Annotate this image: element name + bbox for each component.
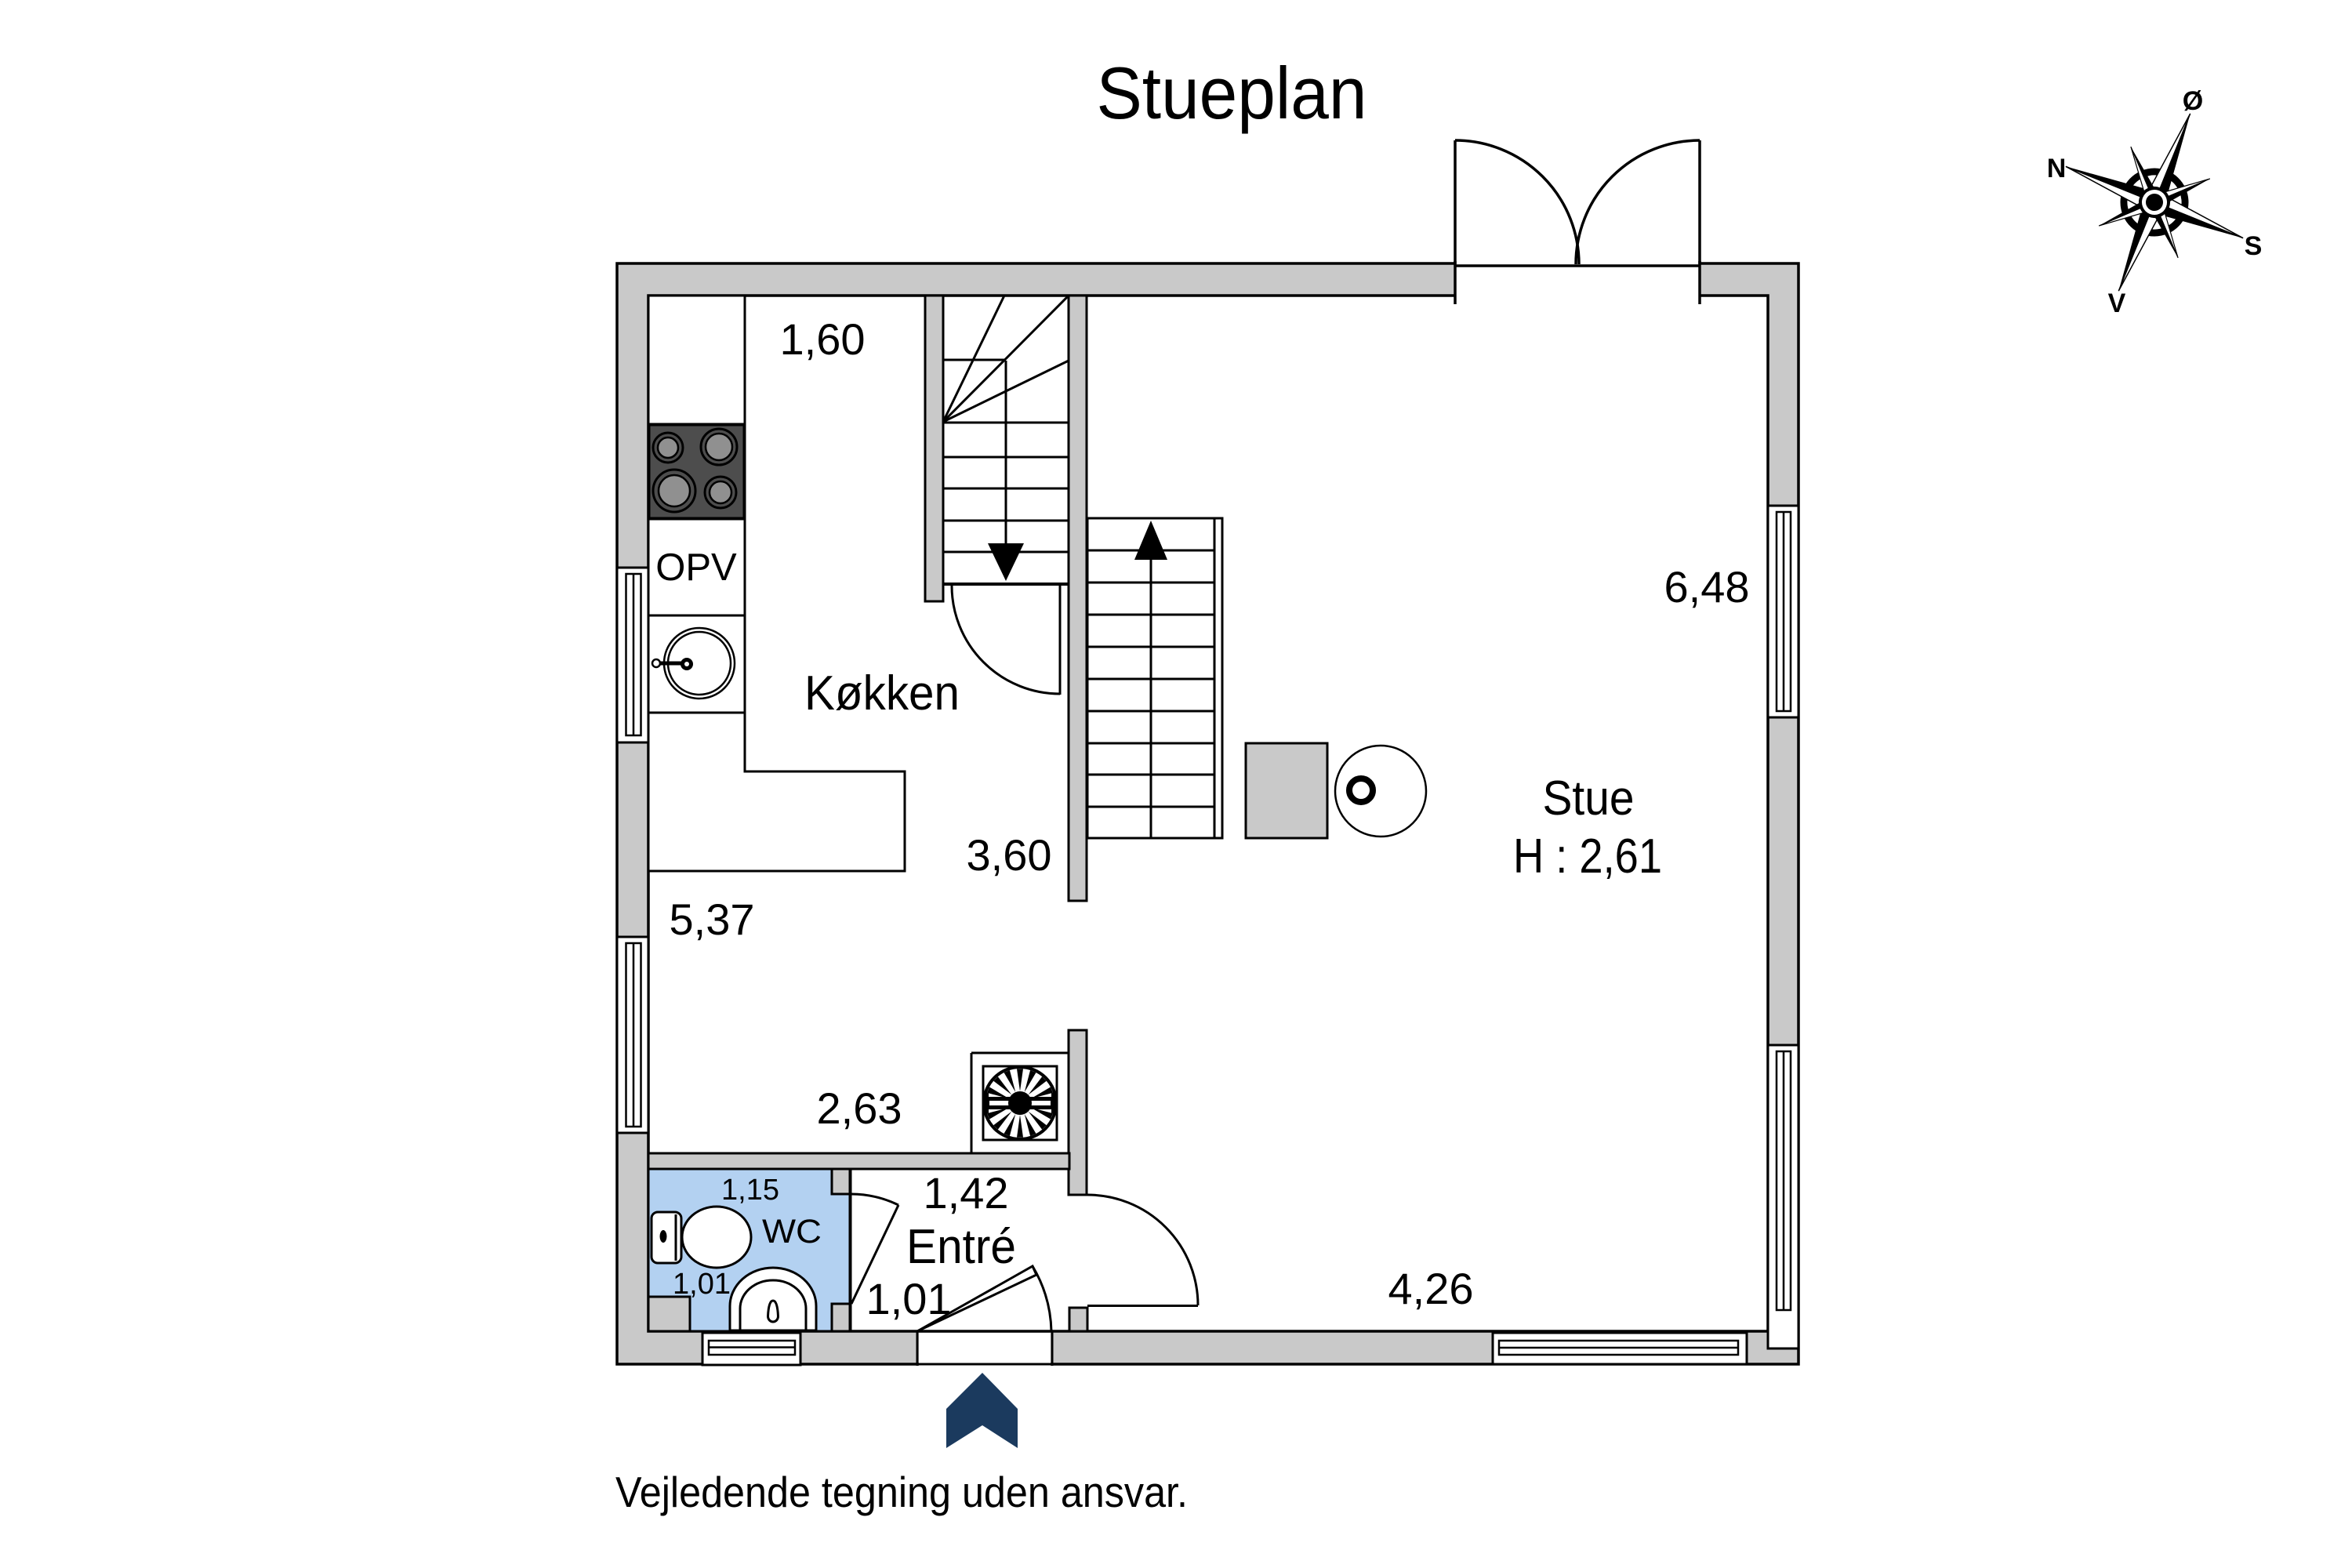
svg-text:1,01: 1,01 (866, 1274, 952, 1323)
svg-text:V: V (2108, 289, 2126, 318)
svg-text:Køkken: Køkken (804, 666, 960, 720)
svg-text:1,42: 1,42 (924, 1168, 1009, 1218)
svg-text:WC: WC (762, 1213, 822, 1250)
svg-text:S: S (2245, 231, 2263, 261)
svg-text:Stueplan: Stueplan (1097, 52, 1367, 134)
svg-text:Vejledende tegning uden ansvar: Vejledende tegning uden ansvar. (615, 1468, 1188, 1516)
svg-text:N: N (2047, 154, 2067, 183)
svg-text:1,15: 1,15 (721, 1174, 779, 1207)
svg-text:H : 2,61: H : 2,61 (1513, 829, 1662, 884)
svg-text:Ø: Ø (2183, 86, 2203, 116)
svg-text:5,37: 5,37 (670, 895, 755, 944)
svg-text:3,60: 3,60 (967, 830, 1052, 880)
svg-text:4,26: 4,26 (1388, 1264, 1474, 1313)
svg-text:Entré: Entré (906, 1220, 1016, 1274)
svg-text:6,48: 6,48 (1664, 562, 1750, 612)
svg-text:Stue: Stue (1543, 771, 1635, 826)
svg-text:OPV: OPV (655, 546, 737, 589)
svg-text:1,60: 1,60 (780, 314, 866, 364)
svg-text:1,01: 1,01 (673, 1268, 731, 1301)
svg-text:2,63: 2,63 (817, 1083, 902, 1133)
